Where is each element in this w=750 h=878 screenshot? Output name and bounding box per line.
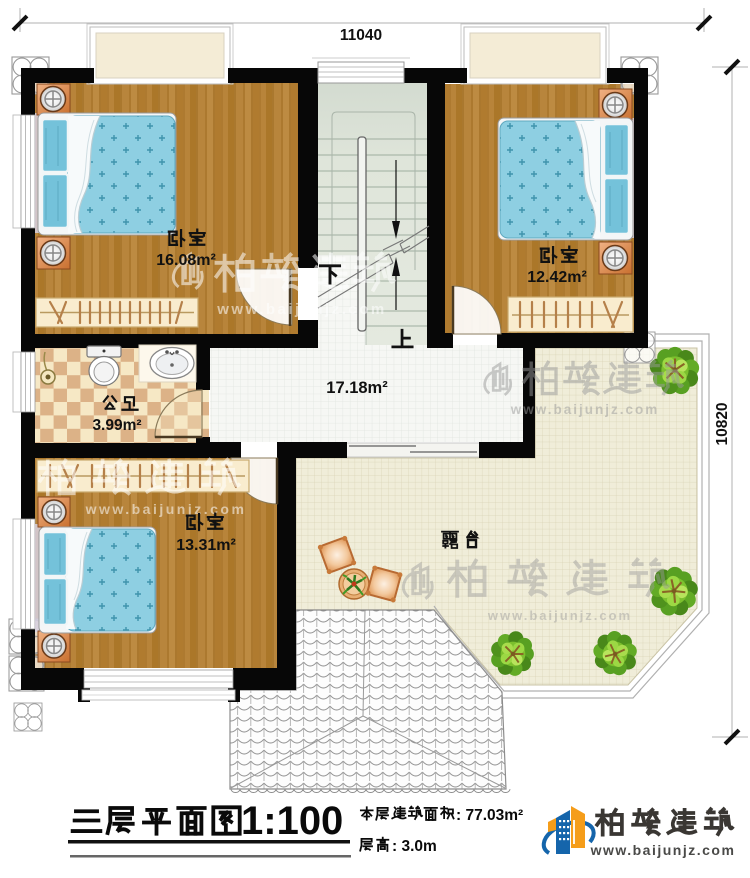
svg-text:www.baijunjz.com: www.baijunjz.com [487,608,632,623]
svg-text:www.baijunjz.com: www.baijunjz.com [85,501,247,517]
svg-text:www.baijunjz.com: www.baijunjz.com [590,842,736,858]
svg-text:11040: 11040 [340,27,382,44]
svg-text:: 77.03m²: : 77.03m² [456,807,523,824]
svg-text:www.baijunjz.com: www.baijunjz.com [216,301,386,318]
svg-text:10820: 10820 [714,402,731,445]
svg-text:16.08m²: 16.08m² [156,252,216,269]
svg-text:17.18m²: 17.18m² [326,379,388,397]
svg-text:1:100: 1:100 [241,799,343,843]
svg-text:12.42m²: 12.42m² [527,269,587,286]
svg-text:13.31m²: 13.31m² [176,537,236,554]
svg-text:3.99m²: 3.99m² [92,417,141,434]
svg-text:www.baijunjz.com: www.baijunjz.com [510,402,660,417]
svg-text:: 3.0m: : 3.0m [392,838,437,855]
